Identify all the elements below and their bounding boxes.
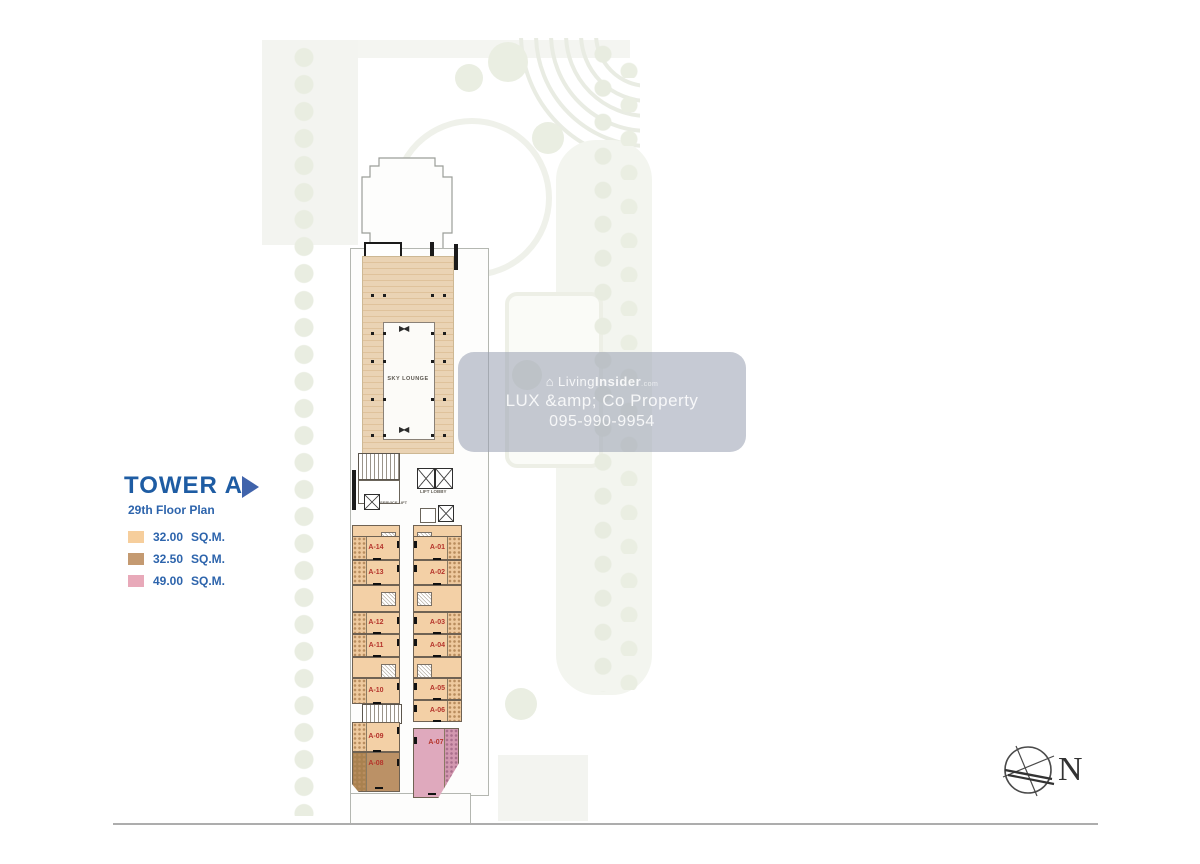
tree-blob (488, 42, 528, 82)
compass-icon (999, 740, 1061, 802)
bathroom-zone (413, 657, 462, 678)
column-dot (443, 398, 446, 401)
brand-tld: .com (641, 381, 658, 388)
door-mark (397, 683, 400, 690)
unit-label: A-04 (414, 642, 461, 649)
unit-label: A-09 (353, 733, 399, 740)
legend-unit-text: SQ.M. (191, 552, 225, 566)
door-mark (414, 565, 417, 572)
stairwell (358, 453, 400, 480)
watermark-line2: LUX &amp; Co Property (506, 391, 699, 411)
column-dot (371, 434, 374, 437)
legend-entry: 49.00SQ.M. (153, 574, 225, 588)
unit-A-05: A-05 (413, 678, 462, 700)
door-mark (373, 750, 381, 753)
door-mark (414, 639, 417, 646)
brand-suffix: Insider (595, 374, 641, 389)
unit-A-13: A-13 (352, 560, 400, 585)
floor-plan-page: SKY LOUNGE ▶◀ ▶◀ SERVICE LIFT LIFT LOBBY… (0, 0, 1200, 864)
tower-podium-base (350, 793, 471, 824)
column-dot (371, 294, 374, 297)
unit-A-06: A-06 (413, 700, 462, 722)
door-mark (414, 705, 417, 712)
watermark: ⌂LivingInsider.com LUX &amp; Co Property… (458, 352, 746, 452)
service-lift-shaft (364, 494, 380, 510)
column-dot (443, 294, 446, 297)
lift-shaft-2 (435, 468, 453, 489)
column-dot (431, 360, 434, 363)
legend-unit-text: SQ.M. (191, 530, 225, 544)
column-dot (371, 332, 374, 335)
unit-A-10: A-10 (352, 678, 400, 704)
unit-label: A-11 (353, 642, 399, 649)
unit-A-03: A-03 (413, 612, 462, 634)
unit-A-01: A-01 (413, 536, 462, 560)
unit-A-02: A-02 (413, 560, 462, 585)
legend-unit-text: SQ.M. (191, 574, 225, 588)
unit-label: A-02 (414, 569, 461, 576)
unit-A-09: A-09 (352, 722, 400, 752)
column-dot (383, 398, 386, 401)
unit-A-04: A-04 (413, 634, 462, 657)
lift-shaft-1 (417, 468, 435, 489)
legend-swatch-325 (128, 553, 144, 565)
floor-plan-subtitle: 29th Floor Plan (128, 503, 215, 517)
door-mark (414, 617, 417, 624)
lift-shaft-3 (438, 505, 454, 522)
bowtie-marker: ▶◀ (399, 426, 407, 434)
utility-room (420, 508, 436, 523)
legend-entry: 32.50SQ.M. (153, 552, 225, 566)
door-mark (397, 617, 400, 624)
bathroom-zone (352, 657, 400, 678)
door-mark (414, 683, 417, 690)
unit-label: A-12 (353, 619, 399, 626)
column-dot (383, 294, 386, 297)
door-mark (397, 727, 400, 734)
tower-title: TOWER A (124, 472, 243, 500)
unit-label: A-07 (414, 739, 458, 746)
column-dot (431, 332, 434, 335)
door-mark (428, 793, 436, 796)
unit-label: A-05 (414, 685, 461, 692)
column-dot (431, 434, 434, 437)
wall-segment (454, 244, 458, 270)
unit-A-14: A-14 (352, 536, 400, 560)
door-mark (375, 787, 383, 790)
lift-lobby-label: LIFT LOBBY (420, 489, 447, 494)
unit-label: A-13 (353, 569, 399, 576)
tower-crown-outline (357, 157, 458, 251)
unit-label: A-03 (414, 619, 461, 626)
door-mark (397, 541, 400, 548)
door-mark (397, 639, 400, 646)
bathroom-zone (352, 585, 400, 612)
column-dot (383, 360, 386, 363)
column-dot (431, 294, 434, 297)
legend-area-value: 49.00 (153, 574, 191, 588)
livinginsider-logo-icon: ⌂ (546, 374, 554, 389)
bathroom-zone (413, 585, 462, 612)
unit-A-11: A-11 (352, 634, 400, 657)
door-mark (397, 565, 400, 572)
door-mark (397, 759, 400, 766)
watermark-phone: 095-990-9954 (549, 413, 655, 431)
ground-line (113, 823, 1098, 825)
tree-blob (455, 64, 483, 92)
column-dot (371, 398, 374, 401)
unit-label: A-08 (353, 761, 399, 768)
column-dot (383, 434, 386, 437)
column-dot (371, 360, 374, 363)
stairwell-lower (362, 704, 402, 724)
legend-area-value: 32.50 (153, 552, 191, 566)
door-mark (414, 737, 417, 744)
legend-swatch-32 (128, 531, 144, 543)
column-dot (443, 360, 446, 363)
balcony-strip (353, 753, 367, 791)
tree-blob (532, 122, 564, 154)
tree-blob (505, 688, 537, 720)
door-mark (433, 720, 441, 723)
bowtie-marker: ▶◀ (399, 325, 407, 333)
unit-label: A-06 (414, 707, 461, 714)
sky-lounge-label: SKY LOUNGE (383, 376, 433, 382)
tower-title-arrow-icon (242, 476, 259, 498)
column-dot (383, 332, 386, 335)
service-lift-label: SERVICE LIFT (380, 500, 407, 505)
north-label: N (1058, 751, 1083, 789)
unit-label: A-14 (353, 544, 399, 551)
door-mark (414, 541, 417, 548)
site-gray-block-bottom (498, 755, 588, 821)
tree-row-left (288, 44, 322, 816)
unit-label: A-10 (353, 687, 399, 694)
legend-swatch-49 (128, 575, 144, 587)
unit-A-08: A-08 (352, 752, 400, 792)
column-dot (443, 332, 446, 335)
legend-area-value: 32.00 (153, 530, 191, 544)
column-dot (443, 434, 446, 437)
column-dot (431, 398, 434, 401)
brand-prefix: Living (558, 374, 595, 389)
unit-label: A-01 (414, 544, 461, 551)
wall-segment (352, 470, 356, 510)
legend-entry: 32.00SQ.M. (153, 530, 225, 544)
unit-A-12: A-12 (352, 612, 400, 634)
watermark-brand: ⌂LivingInsider.com (546, 374, 659, 389)
